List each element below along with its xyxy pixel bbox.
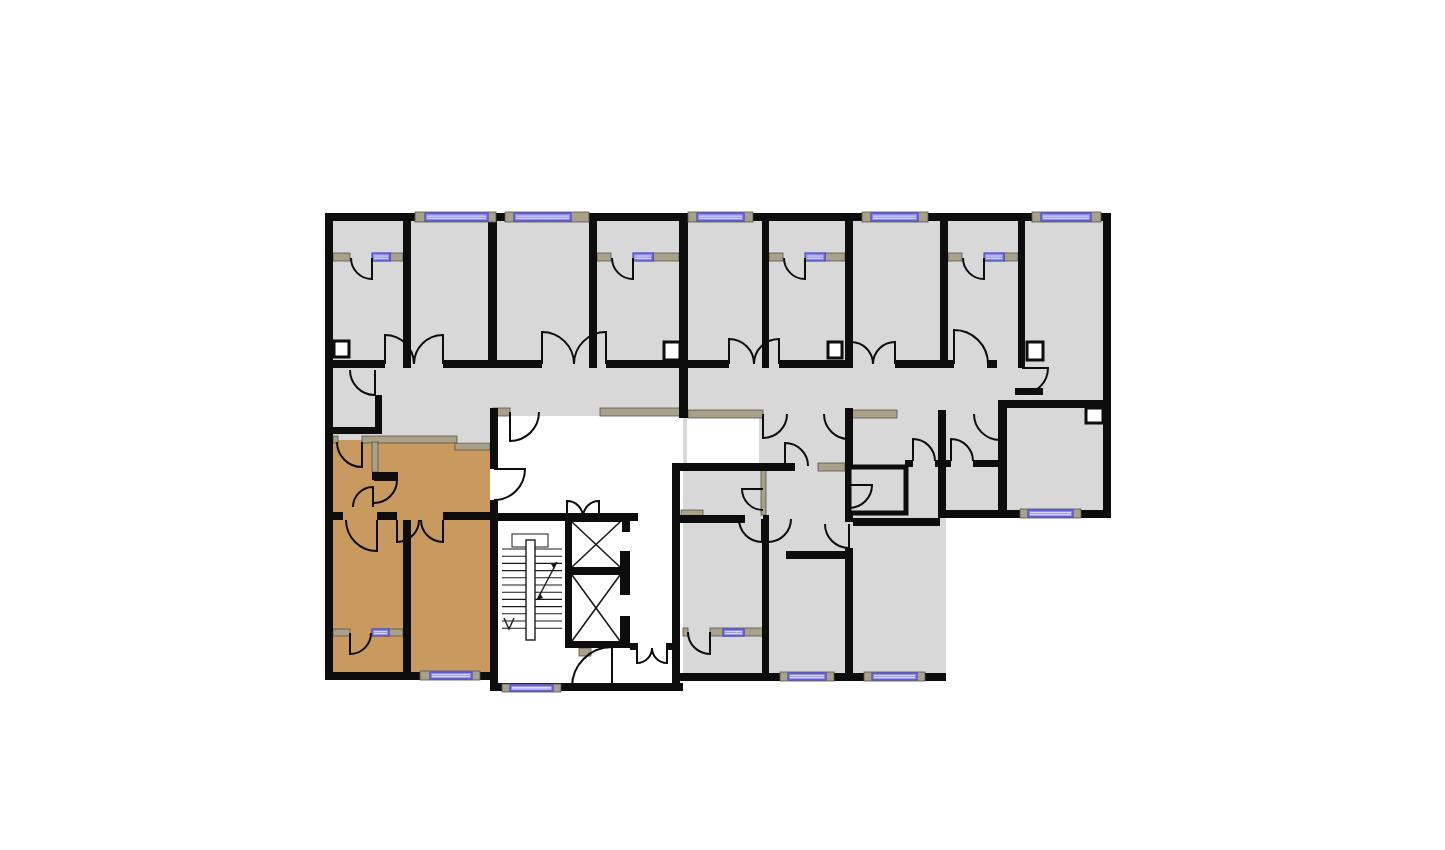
floor-plan-canvas [0,0,1445,850]
floor-plan-svg [0,0,1445,850]
highlighted-apartment-hitbox[interactable] [333,436,497,676]
elevator-shafts-layer [572,522,620,641]
door-arc [637,648,652,663]
door-arc [652,648,667,663]
door-arc [494,469,525,500]
door-arc [510,412,539,441]
door-arc [572,647,612,687]
white-patches-layer [687,418,759,463]
staircase [502,534,562,640]
